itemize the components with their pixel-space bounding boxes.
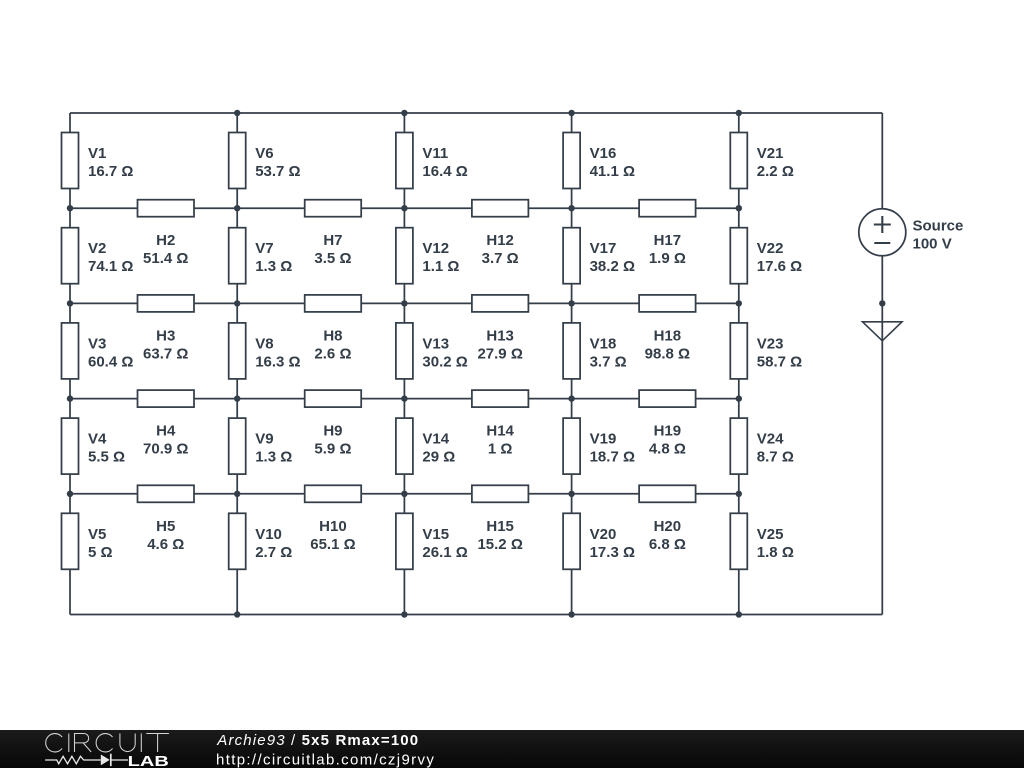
svg-text:70.9 Ω: 70.9 Ω bbox=[143, 441, 188, 458]
svg-text:V17: V17 bbox=[590, 240, 617, 257]
svg-text:Source: Source bbox=[913, 218, 964, 235]
svg-text:V4: V4 bbox=[88, 431, 107, 448]
svg-text:V7: V7 bbox=[255, 240, 273, 257]
svg-text:17.3 Ω: 17.3 Ω bbox=[590, 544, 635, 561]
svg-text:1.8 Ω: 1.8 Ω bbox=[757, 544, 794, 561]
svg-text:6.8 Ω: 6.8 Ω bbox=[649, 536, 686, 553]
svg-text:H20: H20 bbox=[654, 518, 682, 535]
svg-text:60.4 Ω: 60.4 Ω bbox=[88, 353, 133, 370]
svg-text:3.7 Ω: 3.7 Ω bbox=[590, 353, 627, 370]
svg-text:3.7 Ω: 3.7 Ω bbox=[482, 250, 519, 267]
svg-text:100 V: 100 V bbox=[913, 236, 952, 253]
svg-text:V6: V6 bbox=[255, 145, 273, 162]
svg-text:Archie93 / 5x5 Rmax=100: Archie93 / 5x5 Rmax=100 bbox=[216, 732, 419, 749]
svg-text:51.4 Ω: 51.4 Ω bbox=[143, 250, 188, 267]
svg-text:V12: V12 bbox=[422, 240, 449, 257]
svg-text:1.3 Ω: 1.3 Ω bbox=[255, 258, 292, 275]
svg-text:27.9 Ω: 27.9 Ω bbox=[477, 345, 522, 362]
svg-text:1.3 Ω: 1.3 Ω bbox=[255, 449, 292, 466]
svg-text:26.1 Ω: 26.1 Ω bbox=[422, 544, 467, 561]
svg-text:1 Ω: 1 Ω bbox=[488, 441, 513, 458]
svg-text:H10: H10 bbox=[319, 518, 347, 535]
svg-text:1.1 Ω: 1.1 Ω bbox=[422, 258, 459, 275]
svg-text:V15: V15 bbox=[422, 526, 449, 543]
svg-text:5 Ω: 5 Ω bbox=[88, 544, 113, 561]
svg-text:4.6 Ω: 4.6 Ω bbox=[147, 536, 184, 553]
svg-text:H15: H15 bbox=[486, 518, 514, 535]
svg-text:H14: H14 bbox=[486, 423, 514, 440]
svg-text:41.1 Ω: 41.1 Ω bbox=[590, 163, 635, 180]
svg-text:V1: V1 bbox=[88, 145, 106, 162]
svg-text:V20: V20 bbox=[590, 526, 617, 543]
svg-text:H5: H5 bbox=[156, 518, 175, 535]
svg-text:18.7 Ω: 18.7 Ω bbox=[590, 449, 635, 466]
svg-text:2.6 Ω: 2.6 Ω bbox=[314, 345, 351, 362]
svg-text:V3: V3 bbox=[88, 335, 106, 352]
svg-text:74.1 Ω: 74.1 Ω bbox=[88, 258, 133, 275]
svg-text:1.9 Ω: 1.9 Ω bbox=[649, 250, 686, 267]
svg-text:8.7 Ω: 8.7 Ω bbox=[757, 449, 794, 466]
svg-text:H9: H9 bbox=[323, 423, 342, 440]
svg-text:V11: V11 bbox=[422, 145, 448, 162]
svg-text:V2: V2 bbox=[88, 240, 106, 257]
svg-text:V5: V5 bbox=[88, 526, 106, 543]
svg-text:V8: V8 bbox=[255, 335, 273, 352]
svg-text:H13: H13 bbox=[486, 327, 514, 344]
svg-text:V10: V10 bbox=[255, 526, 282, 543]
svg-text:H3: H3 bbox=[156, 327, 175, 344]
svg-text:63.7 Ω: 63.7 Ω bbox=[143, 345, 188, 362]
svg-text:V18: V18 bbox=[590, 335, 617, 352]
svg-text:H18: H18 bbox=[654, 327, 682, 344]
svg-text:H12: H12 bbox=[486, 232, 514, 249]
svg-text:16.3 Ω: 16.3 Ω bbox=[255, 353, 300, 370]
svg-text:V21: V21 bbox=[757, 145, 784, 162]
svg-text:V22: V22 bbox=[757, 240, 784, 257]
svg-text:53.7 Ω: 53.7 Ω bbox=[255, 163, 300, 180]
svg-text:98.8 Ω: 98.8 Ω bbox=[645, 345, 690, 362]
svg-text:58.7 Ω: 58.7 Ω bbox=[757, 353, 802, 370]
svg-text:2.7 Ω: 2.7 Ω bbox=[255, 544, 292, 561]
svg-text:V13: V13 bbox=[422, 335, 449, 352]
svg-text:16.4 Ω: 16.4 Ω bbox=[422, 163, 467, 180]
svg-text:H4: H4 bbox=[156, 423, 176, 440]
svg-text:H17: H17 bbox=[654, 232, 682, 249]
svg-text:V14: V14 bbox=[422, 431, 449, 448]
svg-text:V16: V16 bbox=[590, 145, 617, 162]
svg-text:2.2 Ω: 2.2 Ω bbox=[757, 163, 794, 180]
svg-text:LAB: LAB bbox=[128, 754, 169, 768]
svg-text:V19: V19 bbox=[590, 431, 617, 448]
svg-text:V25: V25 bbox=[757, 526, 784, 543]
svg-text:5.9 Ω: 5.9 Ω bbox=[314, 441, 351, 458]
svg-text:4.8 Ω: 4.8 Ω bbox=[649, 441, 686, 458]
svg-text:V9: V9 bbox=[255, 431, 273, 448]
svg-text:3.5 Ω: 3.5 Ω bbox=[314, 250, 351, 267]
svg-text:16.7 Ω: 16.7 Ω bbox=[88, 163, 133, 180]
svg-text:H19: H19 bbox=[654, 423, 682, 440]
svg-text:H2: H2 bbox=[156, 232, 175, 249]
svg-text:H7: H7 bbox=[323, 232, 342, 249]
svg-text:15.2 Ω: 15.2 Ω bbox=[477, 536, 522, 553]
svg-text:V24: V24 bbox=[757, 431, 784, 448]
svg-text:H8: H8 bbox=[323, 327, 342, 344]
svg-text:30.2 Ω: 30.2 Ω bbox=[422, 353, 467, 370]
svg-text:17.6 Ω: 17.6 Ω bbox=[757, 258, 802, 275]
svg-text:http://circuitlab.com/czj9rvy: http://circuitlab.com/czj9rvy bbox=[216, 752, 435, 768]
svg-text:29 Ω: 29 Ω bbox=[422, 449, 455, 466]
svg-text:65.1 Ω: 65.1 Ω bbox=[310, 536, 355, 553]
svg-text:5.5 Ω: 5.5 Ω bbox=[88, 449, 125, 466]
svg-text:38.2 Ω: 38.2 Ω bbox=[590, 258, 635, 275]
svg-text:V23: V23 bbox=[757, 335, 784, 352]
